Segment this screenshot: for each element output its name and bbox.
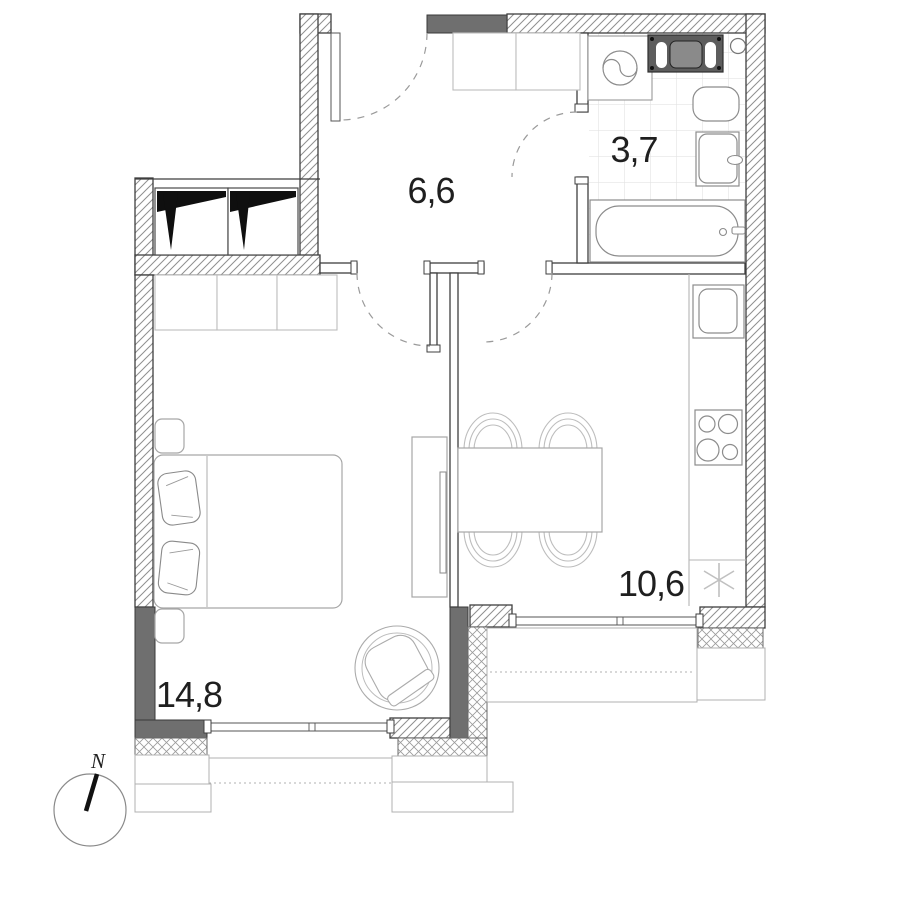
compass-circle [54, 774, 126, 846]
radiator-bolt [650, 66, 654, 70]
window-bedroom [207, 723, 390, 731]
floorplan-svg: 6,6 3,7 10,6 14,8 N [0, 0, 900, 900]
refrigerator-asterisk-icon [704, 563, 734, 597]
radiator-body [670, 41, 702, 68]
pier-bedroom-left [135, 607, 155, 738]
wardrobe-section [155, 275, 217, 330]
tub-faucet-icon [732, 227, 745, 234]
toilet [693, 87, 739, 121]
armchair [355, 626, 439, 710]
drain-icon [720, 229, 727, 236]
wall-entry-shaft [427, 15, 507, 33]
bedroom-door-swing [357, 273, 430, 346]
facade-slab [392, 782, 513, 812]
pillow [157, 540, 200, 596]
kitchen-door-swing [484, 273, 552, 342]
hallway-area-label: 6,6 [407, 170, 454, 211]
wall-doorway-cap [430, 263, 484, 273]
window-jamb [204, 720, 211, 733]
facade-slab [487, 628, 697, 702]
closet-section [516, 33, 580, 90]
pier-bedroom-bottom [135, 720, 207, 738]
wall-kitchen-sill-right [700, 607, 765, 628]
wardrobe-section [277, 275, 337, 330]
dining-table [458, 448, 602, 532]
window-jamb [387, 720, 394, 733]
window-jamb [509, 614, 516, 627]
entrance-door-swing [340, 33, 427, 120]
wardrobe-section [217, 275, 277, 330]
radiator-pill [656, 42, 667, 68]
facade-cross-middle-v [468, 627, 487, 738]
vent-shafts [155, 188, 298, 255]
jamb-tick [575, 104, 588, 112]
wall-bedroom-door-stub [430, 273, 437, 347]
window-jamb [696, 614, 703, 627]
pier-middle [450, 607, 468, 738]
jamb-tick [575, 177, 588, 184]
pillow [157, 470, 202, 527]
nightstand [155, 609, 184, 643]
facade-slab [392, 756, 487, 782]
jamb-tick [478, 261, 484, 274]
north-label: N [90, 749, 106, 773]
bathtub [590, 200, 745, 262]
wall-bedroom-kitchen [450, 273, 458, 607]
north-compass: N [54, 749, 126, 846]
bedroom-area-label: 14,8 [156, 674, 222, 715]
facade-cross-left [135, 738, 207, 755]
bathroom-door-swing [512, 112, 577, 177]
radiator-pill [705, 42, 716, 68]
wall-bedroom-sill-right [390, 718, 450, 738]
nightstand [155, 419, 184, 453]
radiator-bolt [650, 37, 654, 41]
window-kitchen [512, 617, 700, 625]
towel-radiator [648, 35, 723, 72]
dining-chair [464, 530, 522, 567]
facade-slab [135, 755, 209, 784]
wall-bedroom-left [135, 275, 153, 607]
wall-hall-left [300, 14, 318, 267]
radiator-bolt [717, 66, 721, 70]
wall-kitchen-top [552, 263, 745, 274]
jamb-tick [424, 261, 430, 274]
faucet-icon [728, 156, 743, 165]
dining-set [458, 413, 602, 567]
stove [695, 410, 742, 465]
facade-cross-middle-h [398, 738, 487, 756]
hallway-closet [453, 33, 580, 90]
facade-cross-right [698, 628, 763, 648]
radiator-bolt [717, 37, 721, 41]
wall-right-exterior [746, 14, 765, 607]
dining-chair [464, 413, 522, 450]
kitchen-fixtures [689, 274, 746, 606]
closet-section [453, 33, 516, 90]
jamb-tick [351, 261, 357, 274]
wall-kitchen-sill-left [470, 605, 512, 627]
kitchen-area-label: 10,6 [618, 563, 684, 604]
facade-slab [135, 784, 211, 812]
pipe-riser-icon [731, 39, 746, 54]
vanity-sink [696, 132, 743, 186]
facade-slab [697, 648, 765, 700]
floorplan-canvas: 6,6 3,7 10,6 14,8 N [0, 0, 900, 900]
kitchen-sink [693, 285, 744, 338]
dining-chair [539, 530, 597, 567]
tv-panel [440, 472, 446, 573]
bathroom-area-label: 3,7 [610, 129, 657, 170]
dining-chair [539, 413, 597, 450]
wall-bathroom-lower [577, 177, 588, 263]
wall-vent-bottom [135, 255, 320, 275]
entrance-door-leaf [331, 33, 340, 121]
wall-top-right [507, 14, 765, 33]
jamb-tick [546, 261, 552, 274]
